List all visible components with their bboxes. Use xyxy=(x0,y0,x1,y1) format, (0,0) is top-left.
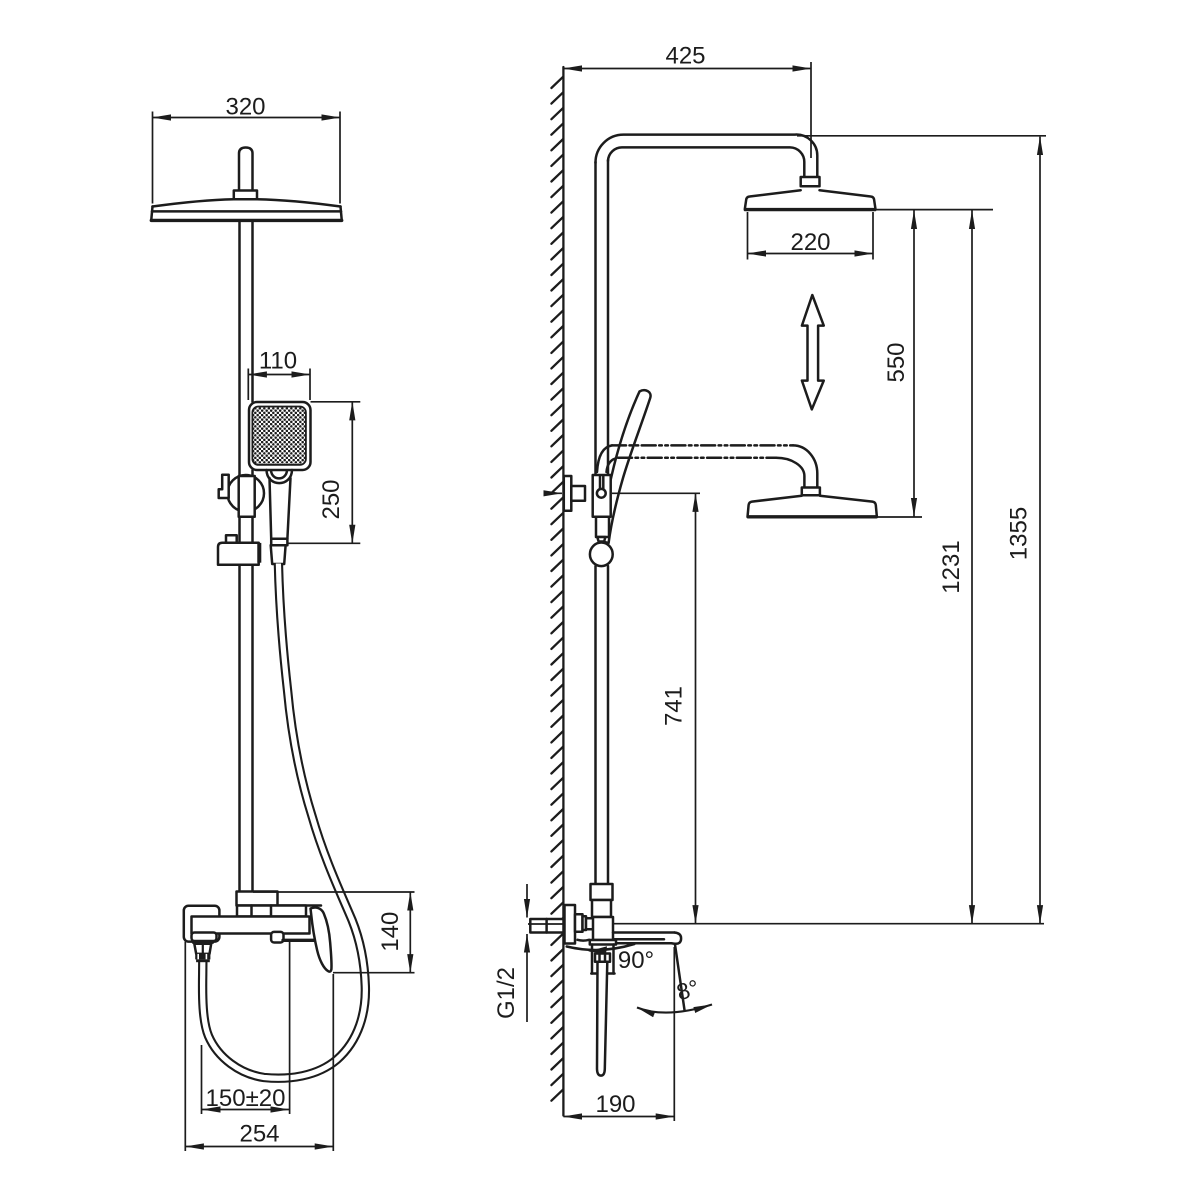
svg-text:250: 250 xyxy=(318,479,345,519)
svg-text:220: 220 xyxy=(790,229,830,256)
svg-text:320: 320 xyxy=(225,94,265,121)
svg-text:90°: 90° xyxy=(618,947,654,974)
svg-text:1355: 1355 xyxy=(1006,507,1033,560)
svg-text:190: 190 xyxy=(595,1091,635,1118)
svg-text:G1/2: G1/2 xyxy=(493,967,520,1019)
svg-text:150±20: 150±20 xyxy=(206,1085,286,1112)
svg-text:110: 110 xyxy=(259,348,297,375)
svg-text:741: 741 xyxy=(661,686,688,726)
svg-text:140: 140 xyxy=(377,912,404,952)
svg-text:1231: 1231 xyxy=(938,540,965,593)
svg-text:254: 254 xyxy=(239,1121,279,1148)
svg-text:425: 425 xyxy=(665,43,705,70)
svg-text:550: 550 xyxy=(883,342,910,382)
